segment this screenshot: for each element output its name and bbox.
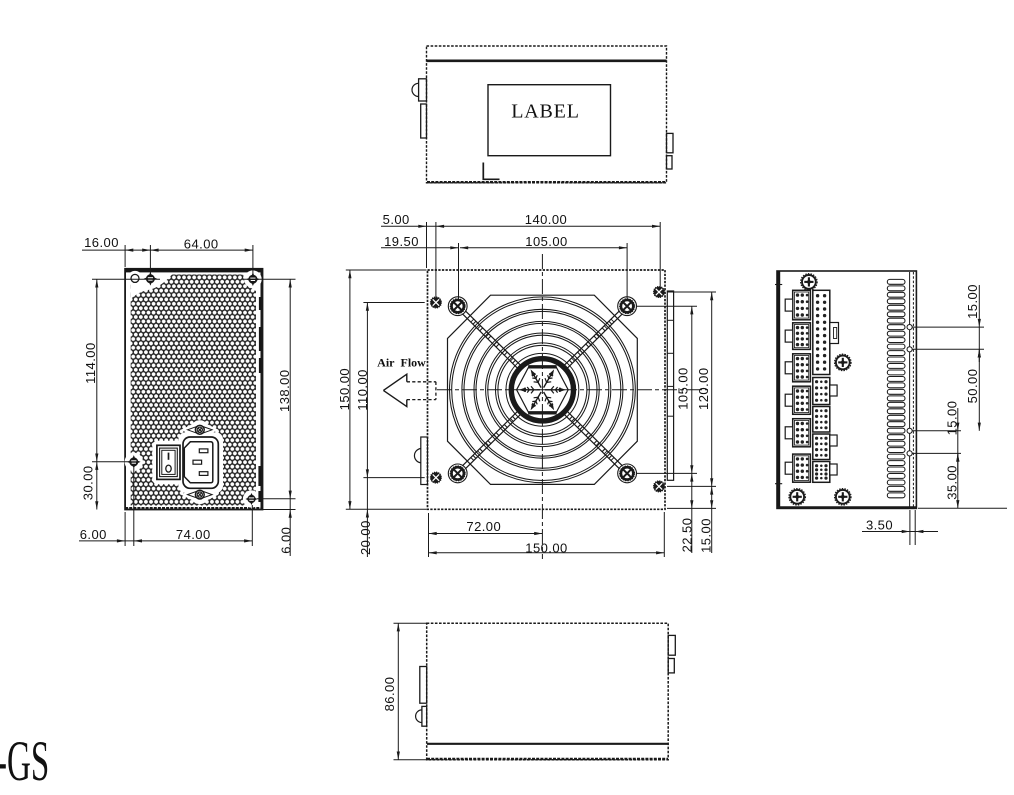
svg-text:6.00: 6.00: [278, 527, 293, 554]
svg-text:114.00: 114.00: [83, 342, 98, 384]
svg-text:64.00: 64.00: [184, 236, 219, 251]
svg-text:15.00: 15.00: [965, 284, 980, 319]
svg-text:5.00: 5.00: [383, 212, 410, 227]
svg-text:105.00: 105.00: [676, 367, 691, 409]
svg-text:140.00: 140.00: [525, 212, 567, 227]
svg-text:35.00: 35.00: [945, 465, 960, 500]
svg-text:138.00: 138.00: [277, 369, 292, 411]
svg-text:150.00: 150.00: [337, 368, 352, 410]
svg-text:30.00: 30.00: [80, 465, 95, 500]
svg-text:-GS: -GS: [0, 730, 49, 794]
svg-text:Air Flow: Air Flow: [377, 356, 426, 370]
svg-text:86.00: 86.00: [382, 677, 397, 712]
svg-text:LABEL: LABEL: [511, 100, 579, 122]
svg-text:120.00: 120.00: [696, 367, 711, 409]
svg-text:19.50: 19.50: [384, 234, 419, 249]
svg-text:3.50: 3.50: [866, 518, 893, 533]
svg-text:16.00: 16.00: [84, 235, 119, 250]
svg-text:20.00: 20.00: [358, 520, 373, 555]
svg-text:74.00: 74.00: [176, 527, 211, 542]
svg-text:22.50: 22.50: [680, 518, 695, 553]
svg-text:15.00: 15.00: [945, 401, 960, 436]
svg-text:150.00: 150.00: [525, 540, 567, 555]
svg-text:72.00: 72.00: [466, 519, 501, 534]
svg-text:105.00: 105.00: [525, 234, 567, 249]
svg-text:50.00: 50.00: [965, 369, 980, 404]
svg-text:110.00: 110.00: [355, 369, 370, 411]
svg-text:6.00: 6.00: [80, 527, 107, 542]
svg-text:15.00: 15.00: [699, 518, 714, 553]
